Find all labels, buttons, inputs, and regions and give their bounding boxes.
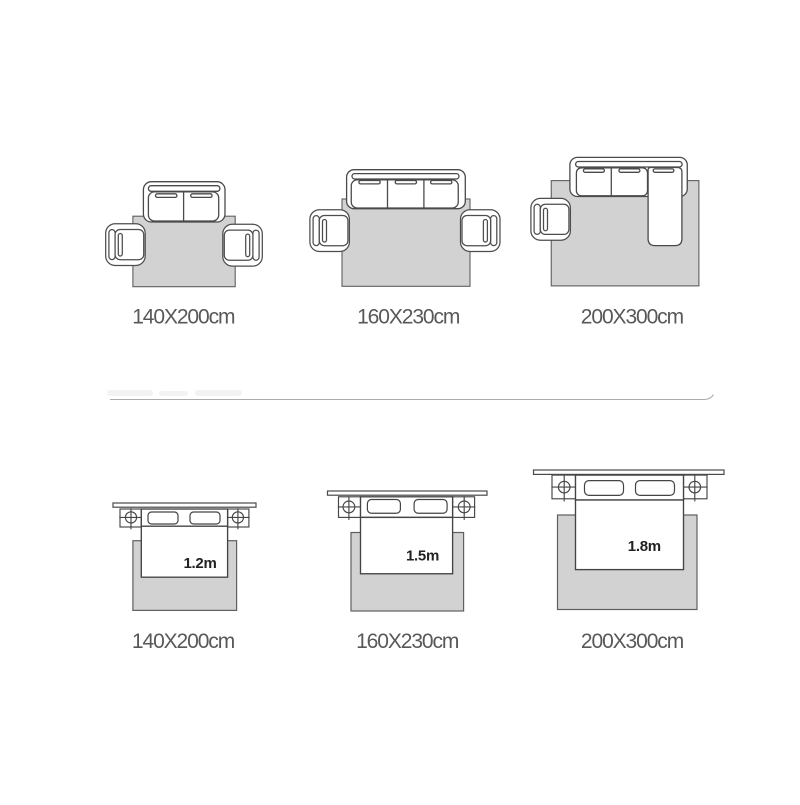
svg-text:200X300cm: 200X300cm [581,306,684,329]
svg-text:1.2m: 1.2m [184,555,217,572]
svg-text:1.8m: 1.8m [628,538,661,555]
svg-text:160X230cm: 160X230cm [356,630,459,653]
svg-text:140X200cm: 140X200cm [132,630,235,653]
svg-text:160X230cm: 160X230cm [357,306,460,329]
svg-text:140X200cm: 140X200cm [132,306,235,329]
svg-text:200X300cm: 200X300cm [581,630,684,653]
svg-text:1.5m: 1.5m [406,548,439,565]
